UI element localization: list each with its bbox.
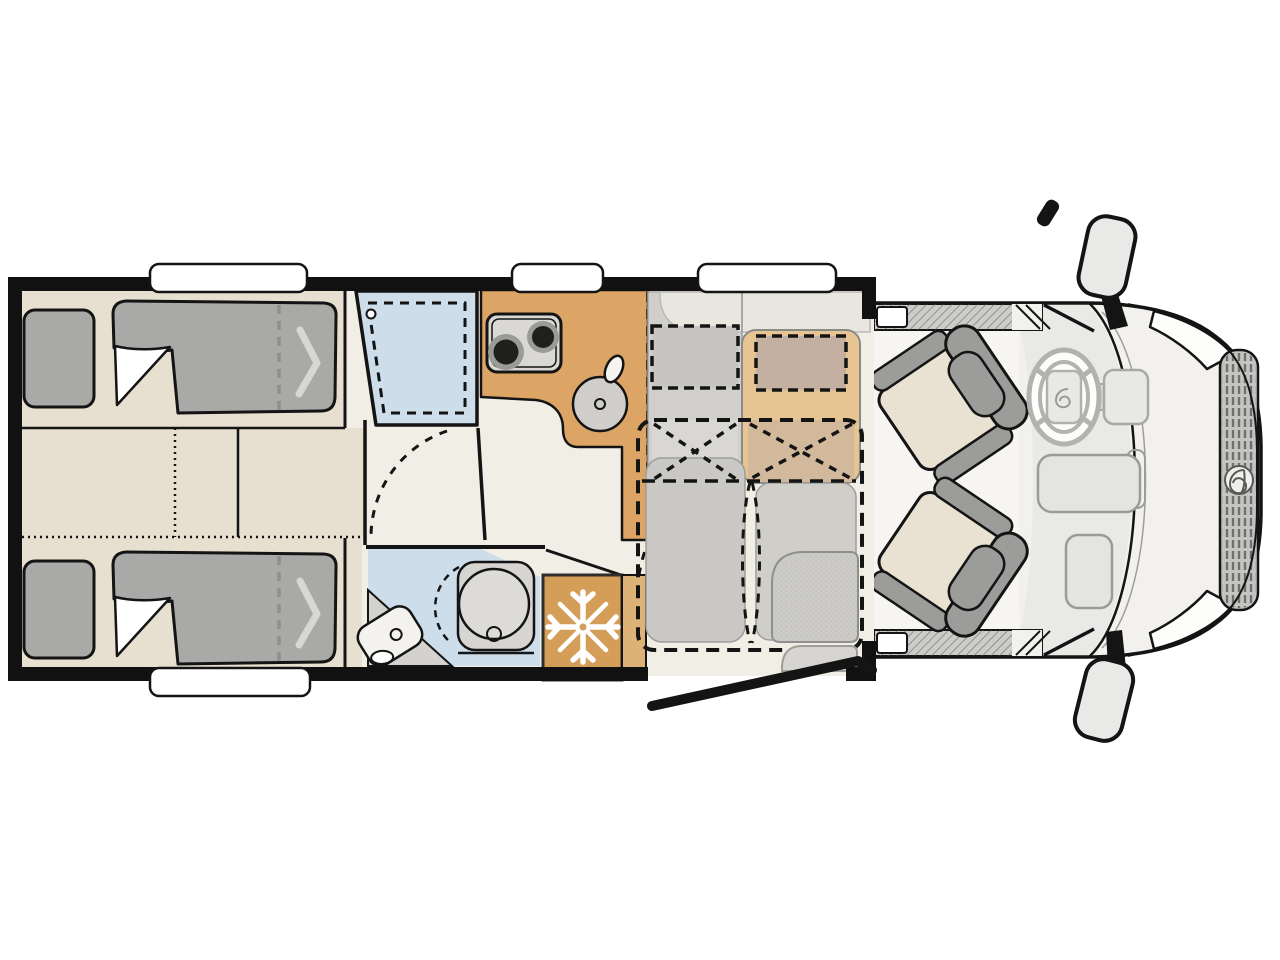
stove <box>487 314 561 372</box>
pillow <box>24 561 94 658</box>
shower-drain-icon <box>367 310 376 319</box>
instrument-cluster <box>1104 370 1148 424</box>
cabinet-backrest-dashed <box>652 326 738 388</box>
bench-backrest-dashed <box>756 336 846 390</box>
window-dinette <box>698 264 836 292</box>
entry-step-bottom <box>877 633 907 653</box>
pillow <box>24 310 94 407</box>
window-rear-bottom <box>150 668 310 696</box>
refrigerator <box>543 575 646 680</box>
center-console <box>1038 455 1140 512</box>
bed-top <box>24 301 336 413</box>
window-kitchen <box>512 264 603 292</box>
entry-step-top <box>877 307 907 327</box>
rear-bed-area <box>22 289 365 668</box>
steering-wheel <box>1029 350 1099 444</box>
glovebox-console <box>1066 535 1112 608</box>
floorplan-canvas <box>0 0 1280 960</box>
motorhome-floorplan <box>0 0 1280 960</box>
cab-section <box>863 197 1261 744</box>
window-rear-top <box>150 264 307 292</box>
bench-seat-patch <box>748 420 854 482</box>
living-section <box>8 264 876 706</box>
bed-conversion-mattress-left <box>646 458 745 642</box>
front-grille <box>1220 350 1258 610</box>
bed-bottom <box>24 552 336 664</box>
